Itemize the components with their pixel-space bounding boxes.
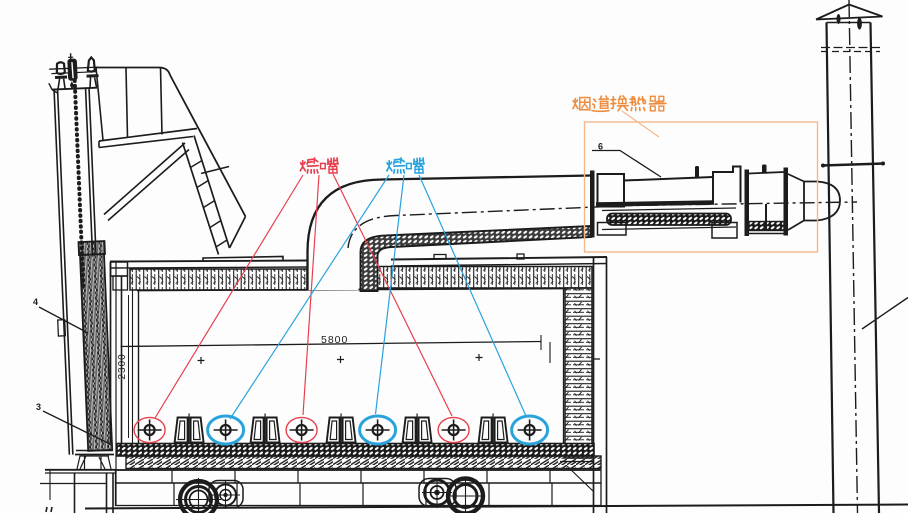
svg-text:4: 4 [33, 297, 38, 307]
svg-text:3: 3 [36, 402, 41, 412]
svg-text:2300: 2300 [117, 353, 128, 379]
svg-text:5800: 5800 [321, 334, 348, 346]
svg-text:6: 6 [598, 142, 603, 152]
